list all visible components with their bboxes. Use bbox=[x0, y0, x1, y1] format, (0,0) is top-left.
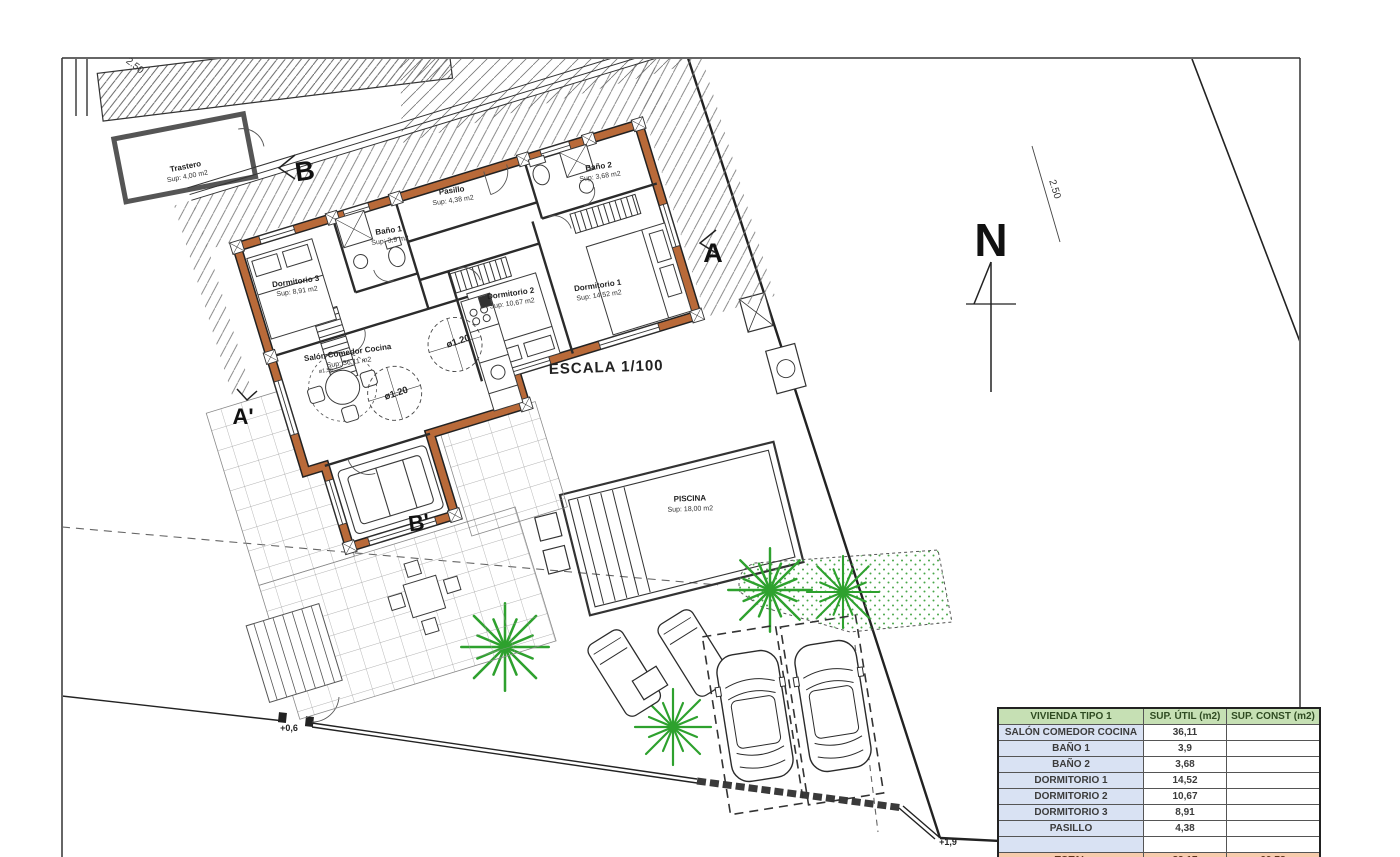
room-name-cell: DORMITORIO 1 bbox=[998, 773, 1144, 789]
site-plan-sheet: Trastero Sup: 4,00 m2 Pasillo Sup: 4,38 … bbox=[0, 0, 1400, 857]
table-total-row: TOTAL 82,17 99,78 bbox=[998, 853, 1320, 857]
section-marker-b: B bbox=[293, 155, 316, 187]
area-table: VIVIENDA TIPO 1 SUP. ÚTIL (m2) SUP. CONS… bbox=[997, 707, 1303, 857]
room-name-cell: DORMITORIO 2 bbox=[998, 789, 1144, 805]
neighbor-building bbox=[97, 30, 452, 121]
room-name-cell: SALÓN COMEDOR COCINA bbox=[998, 725, 1144, 741]
svg-text:Sup: 18,00 m2: Sup: 18,00 m2 bbox=[667, 505, 713, 514]
section-marker-b-prime: B' bbox=[407, 509, 431, 537]
value-cell: 8,91 bbox=[1144, 805, 1227, 821]
pool-shower-pad bbox=[535, 512, 562, 541]
section-marker-a: A bbox=[703, 238, 723, 268]
road-line bbox=[1192, 59, 1305, 355]
table-row: DORMITORIO 3 8,91 bbox=[998, 805, 1320, 821]
north-arrow: N bbox=[966, 214, 1016, 392]
dimension-label: 2.50 bbox=[1046, 178, 1062, 200]
total-value-cell: 99,78 bbox=[1227, 853, 1321, 857]
south-wall bbox=[62, 696, 284, 721]
room-name-cell: DORMITORIO 3 bbox=[998, 805, 1144, 821]
boundary-pillar bbox=[76, 58, 87, 116]
table-row: PASILLO 4,38 bbox=[998, 821, 1320, 837]
car bbox=[788, 637, 877, 774]
label-piscina: PISCINA Sup: 18,00 m2 bbox=[667, 493, 713, 514]
table-title-cell: VIVIENDA TIPO 1 bbox=[998, 708, 1144, 725]
value-cell bbox=[1227, 725, 1321, 741]
table-header-row: VIVIENDA TIPO 1 SUP. ÚTIL (m2) SUP. CONS… bbox=[998, 708, 1320, 725]
svg-text:N: N bbox=[974, 214, 1007, 266]
value-cell bbox=[1144, 837, 1227, 853]
room-name-cell bbox=[998, 837, 1144, 853]
room-name-cell: BAÑO 2 bbox=[998, 757, 1144, 773]
utility-boxes bbox=[739, 288, 806, 396]
value-cell: 4,38 bbox=[1144, 821, 1227, 837]
scale-label: ESCALA 1/100 bbox=[549, 357, 664, 378]
value-cell bbox=[1227, 837, 1321, 853]
total-label-cell: TOTAL bbox=[998, 853, 1144, 857]
value-cell: 36,11 bbox=[1144, 725, 1227, 741]
column-header-cell: SUP. CONST (m2) bbox=[1227, 708, 1321, 725]
value-cell bbox=[1227, 821, 1321, 837]
table-row bbox=[998, 837, 1320, 853]
table-row: DORMITORIO 2 10,67 bbox=[998, 789, 1320, 805]
table-row: BAÑO 2 3,68 bbox=[998, 757, 1320, 773]
pool-steps bbox=[577, 487, 650, 603]
total-value-cell: 82,17 bbox=[1144, 853, 1227, 857]
value-cell: 3,9 bbox=[1144, 741, 1227, 757]
value-cell: 10,67 bbox=[1144, 789, 1227, 805]
value-cell bbox=[1227, 805, 1321, 821]
table-row: SALÓN COMEDOR COCINA 36,11 bbox=[998, 725, 1320, 741]
value-cell: 3,68 bbox=[1144, 757, 1227, 773]
room-name-cell: BAÑO 1 bbox=[998, 741, 1144, 757]
palm-tree bbox=[728, 548, 812, 632]
level-label: +1,9 bbox=[939, 837, 957, 847]
value-cell bbox=[1227, 741, 1321, 757]
table-row: DORMITORIO 1 14,52 bbox=[998, 773, 1320, 789]
svg-text:PISCINA: PISCINA bbox=[674, 493, 707, 503]
value-cell: 14,52 bbox=[1144, 773, 1227, 789]
value-cell bbox=[1227, 757, 1321, 773]
value-cell bbox=[1227, 789, 1321, 805]
column-header-cell: SUP. ÚTIL (m2) bbox=[1144, 708, 1227, 725]
level-label: +0,6 bbox=[280, 723, 298, 733]
section-marker-a-prime: A' bbox=[232, 404, 253, 429]
room-name-cell: PASILLO bbox=[998, 821, 1144, 837]
value-cell bbox=[1227, 773, 1321, 789]
table-row: BAÑO 1 3,9 bbox=[998, 741, 1320, 757]
